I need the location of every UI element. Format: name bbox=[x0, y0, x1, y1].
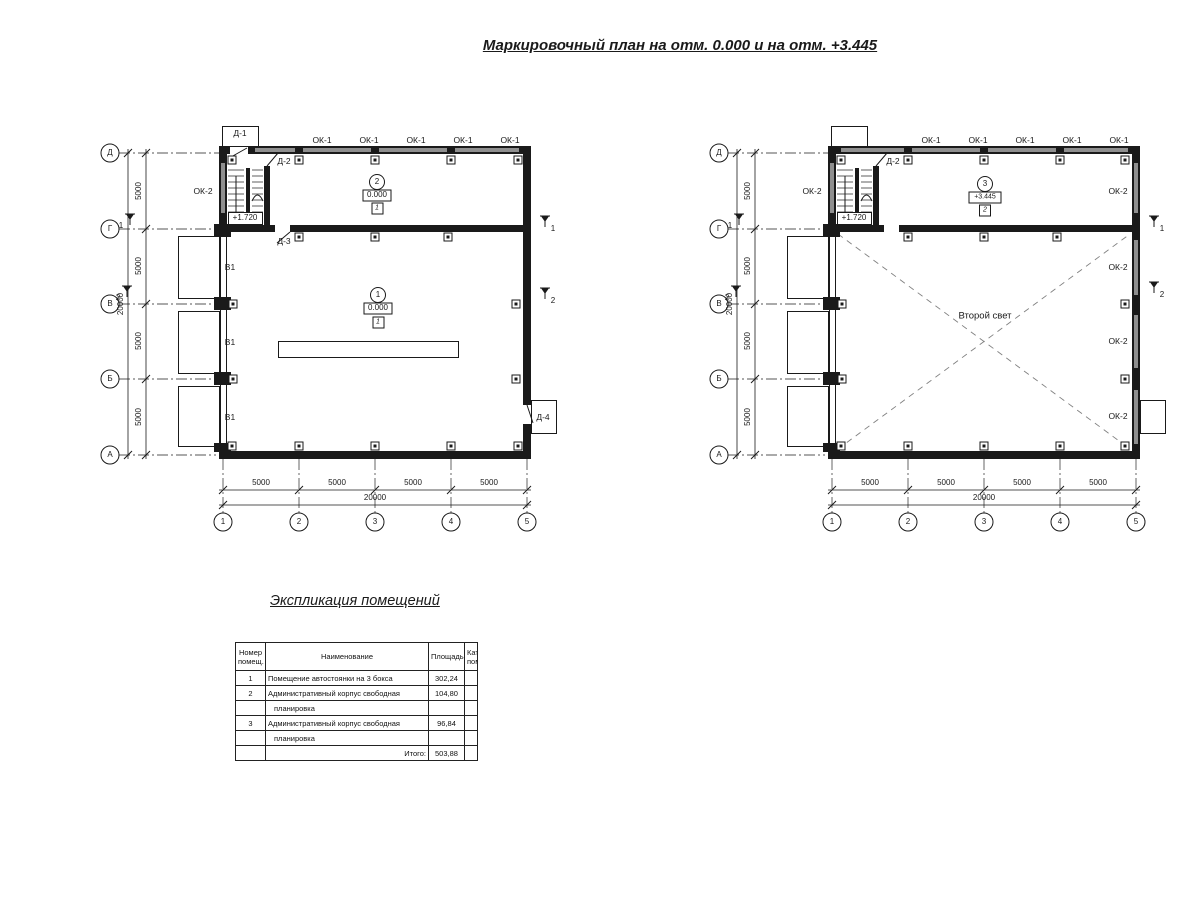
cell-number bbox=[236, 731, 266, 746]
dim-bay: 5000 bbox=[252, 479, 270, 487]
total-label: Итого: bbox=[266, 746, 429, 761]
cell-area bbox=[429, 731, 465, 746]
axis-row-label: Г bbox=[717, 225, 721, 233]
axis-row-label: Д bbox=[716, 149, 721, 157]
cell-name: Помещение автостоянки на 3 бокса bbox=[266, 671, 429, 686]
section-mark-number: 2 bbox=[725, 294, 729, 302]
window-label-ok2: ОК-2 bbox=[802, 187, 821, 196]
axis-row-label: Д bbox=[107, 149, 112, 157]
section-mark-number: 1 bbox=[1160, 225, 1164, 233]
window-label-ok1: ОК-1 bbox=[968, 136, 987, 145]
dim-bay: 5000 bbox=[135, 182, 143, 200]
right-plan-axis-bubbles bbox=[710, 144, 1145, 531]
cell-number bbox=[236, 701, 266, 716]
window-label-ok1: ОК-1 bbox=[453, 136, 472, 145]
dim-bay: 5000 bbox=[937, 479, 955, 487]
sheet-title: Маркировочный план на отм. 0.000 и на от… bbox=[400, 37, 960, 54]
cell-name: планировка bbox=[266, 701, 429, 716]
dim-bay: 5000 bbox=[744, 257, 752, 275]
door-label-d2: Д-2 bbox=[277, 157, 290, 166]
cell-category bbox=[465, 716, 478, 731]
window-label-ok2: ОК-2 bbox=[1108, 263, 1127, 272]
room-elevation: +3.445 bbox=[974, 194, 996, 201]
col-header-area: Площадь bbox=[429, 643, 465, 671]
axis-col-label: 4 bbox=[1058, 518, 1062, 526]
dim-bay: 5000 bbox=[135, 332, 143, 350]
door-label-d2: Д-2 bbox=[886, 157, 899, 166]
cell-category bbox=[465, 686, 478, 701]
dim-bay: 5000 bbox=[1089, 479, 1107, 487]
door-label-d4: Д-4 bbox=[536, 413, 549, 422]
window-label-ok1: ОК-1 bbox=[1062, 136, 1081, 145]
window-label-ok2: ОК-2 bbox=[1108, 337, 1127, 346]
dim-bay: 5000 bbox=[135, 257, 143, 275]
window-label-ok1: ОК-1 bbox=[500, 136, 519, 145]
dim-bay: 5000 bbox=[404, 479, 422, 487]
dim-bay: 5000 bbox=[861, 479, 879, 487]
section-mark-number: 2 bbox=[1160, 291, 1164, 299]
drawing-sheet: Маркировочный план на отм. 0.000 и на от… bbox=[0, 0, 1200, 900]
dim-bay: 5000 bbox=[328, 479, 346, 487]
room-number: 3 bbox=[983, 180, 987, 188]
room-elevation: 0.000 bbox=[368, 304, 388, 312]
section-mark-number: 1 bbox=[728, 222, 732, 230]
left-plan-thin-lines bbox=[179, 127, 557, 452]
cell-area bbox=[429, 701, 465, 716]
total-value: 503,88 bbox=[429, 746, 465, 761]
dim-bay: 5000 bbox=[744, 332, 752, 350]
axis-row-label: А bbox=[716, 451, 721, 459]
table-row: 3 Административный корпус свободная 96,8… bbox=[236, 716, 478, 731]
dim-bay: 5000 bbox=[480, 479, 498, 487]
cell-number: 2 bbox=[236, 686, 266, 701]
room-category: 1 bbox=[376, 319, 380, 326]
table-row: 1 Помещение автостоянки на 3 бокса 302,2… bbox=[236, 671, 478, 686]
window-label-ok2: ОК-2 bbox=[1108, 412, 1127, 421]
table-header-row: Номер помещ. Наименование Площадь Кат. п… bbox=[236, 643, 478, 671]
gate-label-v1: В1 bbox=[225, 263, 235, 272]
stair-level-mark: +1.720 bbox=[233, 214, 258, 222]
axis-row-label: А bbox=[107, 451, 112, 459]
window-label-ok1: ОК-1 bbox=[1015, 136, 1034, 145]
second-light-diagonals bbox=[838, 234, 1130, 449]
cell-category bbox=[465, 746, 478, 761]
stair-level-mark: +1.720 bbox=[842, 214, 867, 222]
col-header-number: Номер помещ. bbox=[236, 643, 266, 671]
section-mark-number: 1 bbox=[119, 222, 123, 230]
axis-col-label: 1 bbox=[221, 518, 225, 526]
cell-number bbox=[236, 746, 266, 761]
cell-area: 302,24 bbox=[429, 671, 465, 686]
axis-row-label: Б bbox=[716, 375, 721, 383]
room-category: 2 bbox=[983, 207, 987, 214]
dim-total: 20000 bbox=[973, 494, 995, 502]
axis-col-label: 3 bbox=[982, 518, 986, 526]
cell-name: Административный корпус свободная bbox=[266, 686, 429, 701]
cell-category bbox=[465, 731, 478, 746]
axis-row-label: Г bbox=[108, 225, 112, 233]
window-label-ok1: ОК-1 bbox=[359, 136, 378, 145]
table-total-row: Итого: 503,88 bbox=[236, 746, 478, 761]
axis-row-label: В bbox=[716, 300, 721, 308]
window-label-ok1: ОК-1 bbox=[921, 136, 940, 145]
axis-col-label: 1 bbox=[830, 518, 834, 526]
section-mark-number: 2 bbox=[551, 297, 555, 305]
window-label-ok1: ОК-1 bbox=[312, 136, 331, 145]
window-label-ok1: ОК-1 bbox=[1109, 136, 1128, 145]
dim-bay: 5000 bbox=[744, 182, 752, 200]
table-row: планировка bbox=[236, 731, 478, 746]
axis-col-label: 5 bbox=[1134, 518, 1138, 526]
cell-category bbox=[465, 671, 478, 686]
axis-col-label: 3 bbox=[373, 518, 377, 526]
dim-bay: 5000 bbox=[135, 408, 143, 426]
second-light-label: Второй свет bbox=[958, 311, 1011, 321]
cell-number: 3 bbox=[236, 716, 266, 731]
col-header-category: Кат. пом. bbox=[465, 643, 478, 671]
axis-col-label: 5 bbox=[525, 518, 529, 526]
axis-col-label: 2 bbox=[297, 518, 301, 526]
dim-bay: 5000 bbox=[744, 408, 752, 426]
explication-table: Номер помещ. Наименование Площадь Кат. п… bbox=[235, 642, 478, 761]
right-plan-thin-lines bbox=[788, 127, 1166, 452]
dim-bay: 5000 bbox=[1013, 479, 1031, 487]
cell-area: 104,80 bbox=[429, 686, 465, 701]
dim-total: 20000 bbox=[364, 494, 386, 502]
section-mark-number: 1 bbox=[551, 225, 555, 233]
axis-row-label: Б bbox=[107, 375, 112, 383]
window-label-ok1: ОК-1 bbox=[406, 136, 425, 145]
cell-category bbox=[465, 701, 478, 716]
axis-row-label: В bbox=[107, 300, 112, 308]
axis-col-label: 2 bbox=[906, 518, 910, 526]
table-row: 2 Административный корпус свободная 104,… bbox=[236, 686, 478, 701]
cell-name: Административный корпус свободная bbox=[266, 716, 429, 731]
gate-label-v1: В1 bbox=[225, 338, 235, 347]
cell-area: 96,84 bbox=[429, 716, 465, 731]
section-mark-number: 2 bbox=[116, 294, 120, 302]
gate-label-v1: В1 bbox=[225, 413, 235, 422]
col-header-name: Наименование bbox=[266, 643, 429, 671]
cell-name: планировка bbox=[266, 731, 429, 746]
door-label-d3: Д-3 bbox=[277, 237, 290, 246]
window-label-ok2: ОК-2 bbox=[1108, 187, 1127, 196]
door-label-d1: Д-1 bbox=[233, 129, 246, 138]
explication-title: Экспликация помещений bbox=[270, 593, 440, 609]
room-category: 1 bbox=[375, 205, 379, 212]
room-elevation: 0.000 bbox=[367, 191, 387, 199]
cell-number: 1 bbox=[236, 671, 266, 686]
room-number: 1 bbox=[376, 291, 380, 299]
table-row: планировка bbox=[236, 701, 478, 716]
window-label-ok2: ОК-2 bbox=[193, 187, 212, 196]
room-number: 2 bbox=[375, 178, 379, 186]
left-plan-axis-bubbles bbox=[101, 144, 536, 531]
axis-col-label: 4 bbox=[449, 518, 453, 526]
